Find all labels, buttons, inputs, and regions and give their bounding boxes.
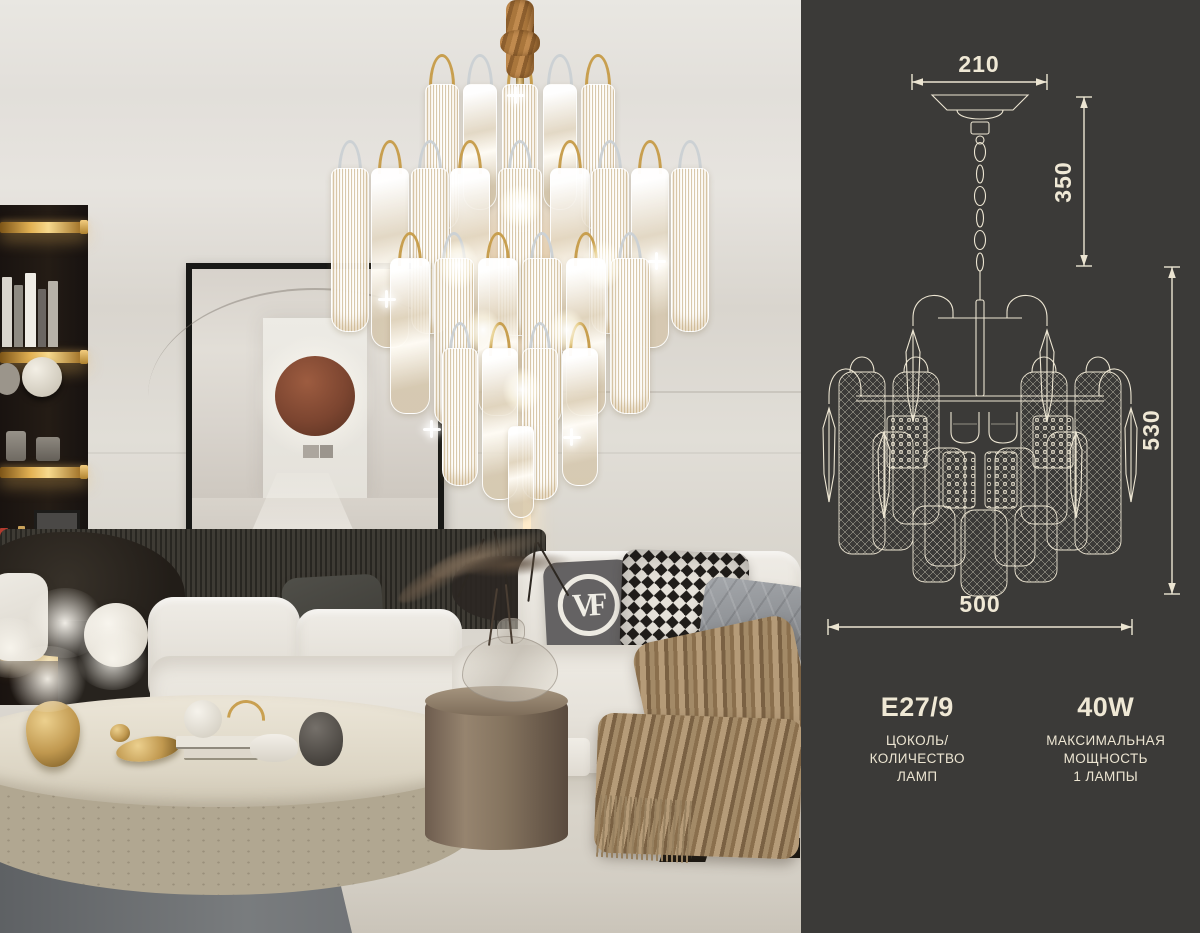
caption-line: МОЩНОСТЬ <box>1012 750 1200 768</box>
sparkle <box>430 420 433 438</box>
gold-leopard-head <box>110 724 130 742</box>
cord-knot <box>500 30 540 56</box>
decor-sphere <box>184 700 222 738</box>
book-spine <box>38 289 46 347</box>
diagram-glass-panels <box>839 372 1121 596</box>
shelf-sculpture <box>6 431 26 461</box>
chandelier-glass-panel <box>562 348 598 486</box>
decor-sphere <box>0 363 20 395</box>
dim-label-210: 210 <box>958 51 999 77</box>
dim-label-530: 530 <box>1138 409 1164 450</box>
chandelier <box>330 0 710 525</box>
spec-panel: 210 350 530 500 E27/9 ЦОКОЛЬ/ КОЛИЧЕСТВО… <box>801 0 1200 933</box>
chandelier-glass-panel <box>442 348 478 486</box>
lamp-glow <box>574 230 630 300</box>
dim-350 <box>1076 97 1092 266</box>
decor-orb <box>22 357 62 397</box>
caption-line: КОЛИЧЕСТВО <box>823 750 1012 768</box>
spec-power: 40W МАКСИМАЛЬНАЯ МОЩНОСТЬ 1 ЛАМПЫ <box>1012 692 1200 785</box>
dim-label-500: 500 <box>959 591 1000 617</box>
chandelier-glass-panel <box>671 168 709 332</box>
book-spine <box>25 273 36 347</box>
flower-puff <box>5 646 90 712</box>
lamp-glow <box>542 300 592 360</box>
spec-socket-caption: ЦОКОЛЬ/ КОЛИЧЕСТВО ЛАМП <box>823 732 1012 785</box>
chandelier-hook <box>585 54 611 88</box>
side-table <box>425 700 568 850</box>
shelf-trim <box>80 465 88 479</box>
lamp-glow <box>495 358 549 422</box>
ceramic-vase <box>299 712 343 766</box>
lifestyle-photo: VF <box>0 0 801 933</box>
sparkle <box>385 290 388 308</box>
white-bowl <box>250 734 298 762</box>
spec-power-caption: МАКСИМАЛЬНАЯ МОЩНОСТЬ 1 ЛАМПЫ <box>1012 732 1200 785</box>
dim-530 <box>1164 267 1180 594</box>
chandelier-line-art <box>823 95 1137 596</box>
lamp-glow <box>458 300 508 360</box>
product-card: VF <box>0 0 1200 933</box>
spec-power-value: 40W <box>1012 692 1200 723</box>
glass-vase <box>462 636 558 702</box>
dim-500 <box>828 619 1132 635</box>
spec-socket-value: E27/9 <box>823 692 1012 723</box>
chandelier-glass-panel <box>390 258 430 414</box>
chandelier-glass-panel <box>331 168 369 332</box>
sparkle <box>655 252 658 270</box>
caption-line: 1 ЛАМПЫ <box>1012 768 1200 786</box>
dim-label-350: 350 <box>1050 161 1076 202</box>
chandelier-hook <box>467 54 493 88</box>
book-spine <box>48 281 58 347</box>
shelf-light <box>0 222 88 233</box>
shelf-trim <box>80 350 88 364</box>
chandelier-hook <box>429 54 455 88</box>
caption-line: МАКСИМАЛЬНАЯ <box>1012 732 1200 750</box>
spec-socket: E27/9 ЦОКОЛЬ/ КОЛИЧЕСТВО ЛАМП <box>823 692 1012 785</box>
diagram-canopy <box>932 95 1028 144</box>
caption-line: ЛАМП <box>823 768 1012 786</box>
monogram-letters: VF <box>571 585 606 624</box>
art-bench <box>303 445 319 458</box>
lamp-glow <box>490 176 550 236</box>
spec-section: E27/9 ЦОКОЛЬ/ КОЛИЧЕСТВО ЛАМП 40W МАКСИМ… <box>801 692 1200 785</box>
stacked-book <box>184 749 258 760</box>
diagram-lamp-cups <box>951 412 1017 443</box>
sparkle <box>514 86 517 104</box>
throw-fringe <box>596 795 695 863</box>
dried-flowers <box>0 588 165 723</box>
diagram-chain <box>975 143 986 272</box>
chandelier-bottom-drop <box>508 426 534 518</box>
shelf-light <box>0 467 88 478</box>
caption-line: ЦОКОЛЬ/ <box>823 732 1012 750</box>
shelf-trim <box>80 220 88 234</box>
lamp-glow <box>430 230 486 300</box>
monogram-ring: VF <box>556 572 621 637</box>
dimension-diagram: 210 350 530 500 <box>801 0 1200 660</box>
book-spine <box>2 277 12 347</box>
book-spine <box>14 285 23 347</box>
chandelier-hook <box>547 54 573 88</box>
sparkle <box>570 428 573 446</box>
shelf-sculpture <box>36 437 60 461</box>
